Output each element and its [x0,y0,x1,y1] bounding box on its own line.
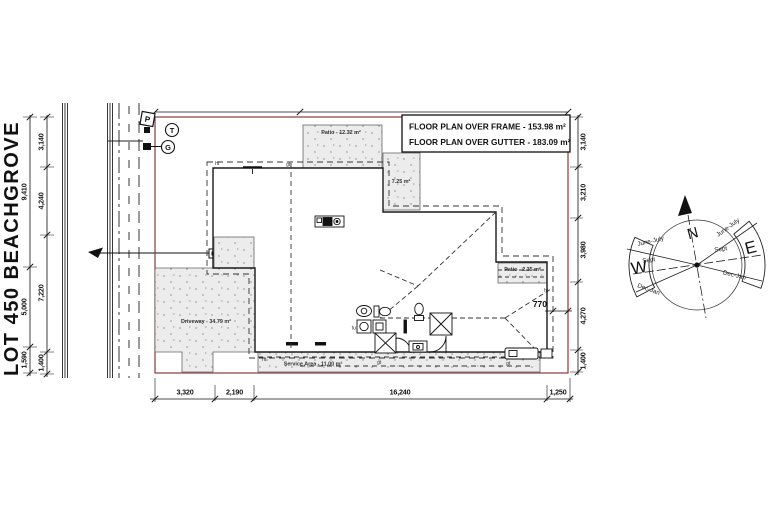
dim-label: 770 [533,299,547,309]
ht-marker: ht [262,357,267,363]
laundry-tub-icon [357,320,371,333]
telephone-pit-icon: T [166,124,179,137]
patio-top-label: Patio - 12.32 m² [321,130,361,136]
season-label-dec-jan: Dec-Jan [722,269,747,282]
dimension-chain-bottom: 3,320 2,190 16,240 1,250 [150,378,573,402]
outdoor-unit-icon [505,348,552,359]
porch-area [214,237,254,268]
dim-label: 2,190 [226,388,243,397]
dim-label: 4,270 [579,307,588,324]
frame-area-text: FLOOR PLAN OVER FRAME - 153.98 m² [409,122,566,132]
top-reference-line [152,109,571,115]
season-label-sept: Sept [714,245,728,254]
eave-dimension: 770 [533,299,572,314]
dim-label: 3,320 [177,388,194,397]
dim-label: 4,240 [37,192,46,209]
gas-label: G [165,143,171,152]
dim-label: 1,590 [20,351,29,368]
patio-right-area [498,263,547,283]
dim-label: 3,980 [579,241,588,258]
north-arrow [678,195,692,216]
window-symbol [243,167,262,174]
dim-label: 1,400 [579,352,588,369]
gutter-area-text: FLOOR PLAN OVER GUTTER - 183.09 m² [409,137,571,147]
dim-label: 3,140 [579,133,588,150]
dim-label: 9,410 [20,183,29,200]
dim-label: 3,140 [37,133,46,150]
washing-machine-icon [373,320,386,333]
gt-marker: gt [506,361,511,367]
ht-marker: ht [544,288,549,294]
step-marker [315,342,326,346]
telephone-label: T [170,126,175,135]
dim-label: 5,000 [20,298,29,315]
driveway-label: Driveway - 34.79 m² [181,319,231,325]
fixtures [315,216,552,359]
gt-marker: gt [377,360,382,366]
title-block: FLOOR PLAN OVER FRAME - 153.98 m² FLOOR … [402,115,571,152]
toilet-icon [415,303,424,320]
patio-side-label: 7.25 m² [392,179,411,185]
power-pit-icon: P [140,111,155,126]
toilet-icon [374,306,391,317]
tub-marker: tu [352,326,356,332]
gas-meter-icon: G [162,141,175,154]
site-plan-page: LOT 450 BEACHGROVE 9,410 5,000 1,590 3,1… [0,0,768,512]
step-marker [286,342,298,346]
meter-box [144,127,150,133]
road-lines [63,103,144,378]
shower-icon [375,333,411,353]
door-leaf [404,320,407,333]
lot-title: LOT 450 BEACHGROVE [0,121,23,376]
gt-marker: gt [286,162,291,168]
site-plan-drawing: LOT 450 BEACHGROVE 9,410 5,000 1,590 3,1… [0,0,768,512]
service-area-label: Service Area - 11.00 m² [284,362,343,368]
dimension-chain-right: 3,140 3,210 3,980 4,270 1,400 [570,114,588,375]
season-label-sept: Sept [642,256,656,265]
compass-rose: N W E June-July June-July Sept Sept Dec-… [627,195,765,318]
dryer-icon [409,341,427,352]
meter-box [143,143,151,150]
dim-label: 1,400 [37,354,46,371]
dim-label: 7,220 [37,284,46,301]
ht-marker: ht [215,161,220,167]
cooktop-icon [315,216,344,227]
patio-right-label: Patio - 2.35 m² [504,267,541,273]
shower-icon [430,313,452,352]
dim-label: 3,210 [579,184,588,201]
basin-icon [357,306,372,317]
dimension-chain-left-inner: 3,140 4,240 7,220 1,400 [37,114,55,377]
dim-label: 1,250 [550,388,567,397]
utility-markers: P T G [140,111,179,153]
dim-label: 16,240 [390,388,411,397]
compass-north-label: N [685,224,700,243]
